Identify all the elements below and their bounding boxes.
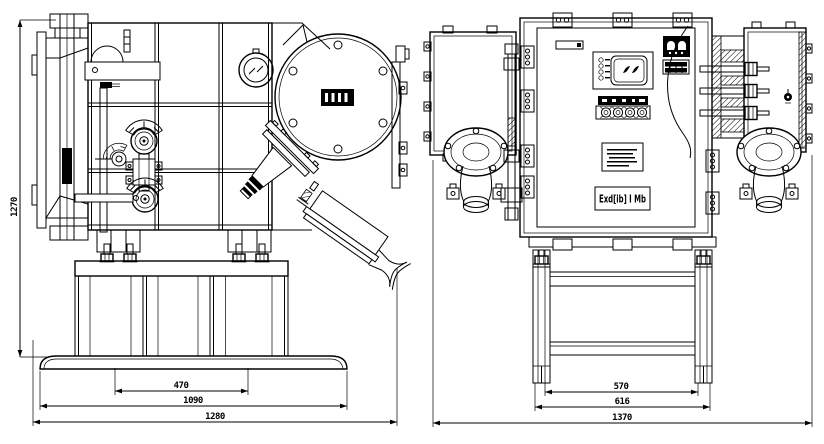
cable-entry-assembly [286, 179, 418, 290]
stud-terminal-2 [700, 85, 769, 98]
hinge-dome [91, 46, 123, 62]
interlock-mechanism [32, 14, 160, 240]
stud-terminal-1 [700, 63, 769, 76]
cable-horn-left [444, 128, 508, 213]
front-view: 1270 470 1090 1280 [10, 14, 418, 426]
terminal-label [663, 60, 689, 74]
dim-height: 1270 [10, 197, 20, 217]
flange-center-label [321, 89, 354, 106]
dim-skid-width: 1090 [183, 396, 203, 406]
side-view: Exd[ib] I Mb [424, 13, 812, 427]
cable-horn-right [737, 128, 801, 213]
dim-overall-width-side: 1370 [612, 413, 632, 423]
dim-leg-spacing: 570 [614, 382, 629, 392]
drawing-canvas: 1270 470 1090 1280 [0, 0, 824, 444]
skid-base [40, 225, 347, 369]
technical-drawing: 1270 470 1090 1280 [0, 0, 824, 444]
nameplate [602, 143, 643, 171]
support-legs [533, 250, 712, 383]
dim-overall-width: 1280 [205, 412, 225, 422]
ex-marking-text: Exd[ib] I Mb [599, 194, 646, 206]
ground-symbol [784, 89, 792, 103]
vent-plug [124, 30, 130, 52]
warning-badge [663, 36, 690, 57]
stud-terminal-3 [700, 107, 769, 120]
indicator-lamps [596, 96, 650, 119]
display-panel [593, 52, 653, 89]
sled-runner [40, 356, 347, 369]
dim-frame-width: 616 [615, 397, 630, 407]
ex-marking-plate: Exd[ib] I Mb [595, 187, 650, 210]
dim-anchor-spacing: 470 [174, 381, 189, 391]
inspection-window [239, 49, 273, 87]
